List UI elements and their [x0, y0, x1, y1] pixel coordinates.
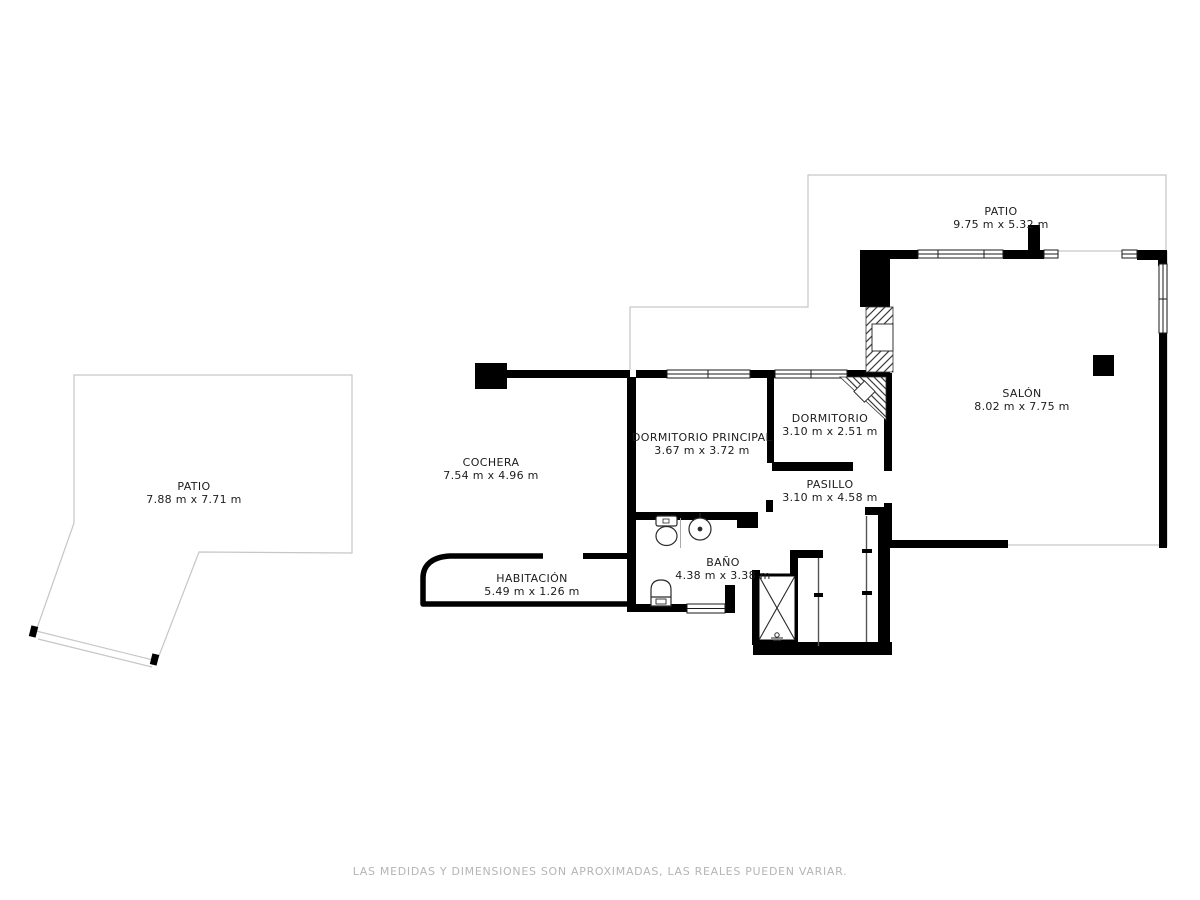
room-dims: 7.88 m x 7.71 m	[146, 493, 241, 506]
room-dims: 4.38 m x 3.38 m	[675, 569, 770, 582]
toilet-bottom	[651, 580, 671, 606]
patio-left-outline	[36, 375, 352, 667]
disclaimer-text: LAS MEDIDAS Y DIMENSIONES SON APROXIMADA…	[0, 865, 1200, 878]
room-name: PATIO	[953, 205, 1048, 218]
room-label-bano: BAÑO 4.38 m x 3.38 m	[675, 556, 770, 582]
room-label-dormitorio: DORMITORIO 3.10 m x 2.51 m	[782, 412, 877, 438]
salon-column	[1093, 355, 1114, 376]
room-label-patio-left: PATIO 7.88 m x 7.71 m	[146, 480, 241, 506]
room-dims: 8.02 m x 7.75 m	[974, 400, 1069, 413]
room-name: DORMITORIO PRINCIPAL	[632, 431, 772, 444]
room-name: PATIO	[146, 480, 241, 493]
room-dims: 3.10 m x 4.58 m	[782, 491, 877, 504]
stairs	[814, 516, 872, 646]
room-dims: 5.49 m x 1.26 m	[484, 585, 579, 598]
room-name: DORMITORIO	[782, 412, 877, 425]
room-name: HABITACIÓN	[484, 572, 579, 585]
room-name: COCHERA	[443, 456, 538, 469]
room-name: PASILLO	[782, 478, 877, 491]
patio-top-outline	[630, 175, 1167, 546]
room-label-habitacion: HABITACIÓN 5.49 m x 1.26 m	[484, 572, 579, 598]
floor-plan: PATIO 7.88 m x 7.71 m PATIO 9.75 m x 5.3…	[0, 0, 1200, 900]
room-label-salon: SALÓN 8.02 m x 7.75 m	[974, 387, 1069, 413]
floor-plan-drawing	[0, 0, 1200, 900]
room-dims: 3.10 m x 2.51 m	[782, 425, 877, 438]
room-dims: 9.75 m x 5.32 m	[953, 218, 1048, 231]
room-label-patio-top: PATIO 9.75 m x 5.32 m	[953, 205, 1048, 231]
room-label-dormitorio-principal: DORMITORIO PRINCIPAL 3.67 m x 3.72 m	[632, 431, 772, 457]
toilet-top	[656, 516, 677, 546]
fireplace	[866, 307, 893, 372]
room-label-pasillo: PASILLO 3.10 m x 4.58 m	[782, 478, 877, 504]
cochera-pillar	[475, 363, 507, 389]
shower	[758, 575, 796, 641]
room-dims: 3.67 m x 3.72 m	[632, 444, 772, 457]
room-name: BAÑO	[675, 556, 770, 569]
room-name: SALÓN	[974, 387, 1069, 400]
room-dims: 7.54 m x 4.96 m	[443, 469, 538, 482]
room-label-cochera: COCHERA 7.54 m x 4.96 m	[443, 456, 538, 482]
